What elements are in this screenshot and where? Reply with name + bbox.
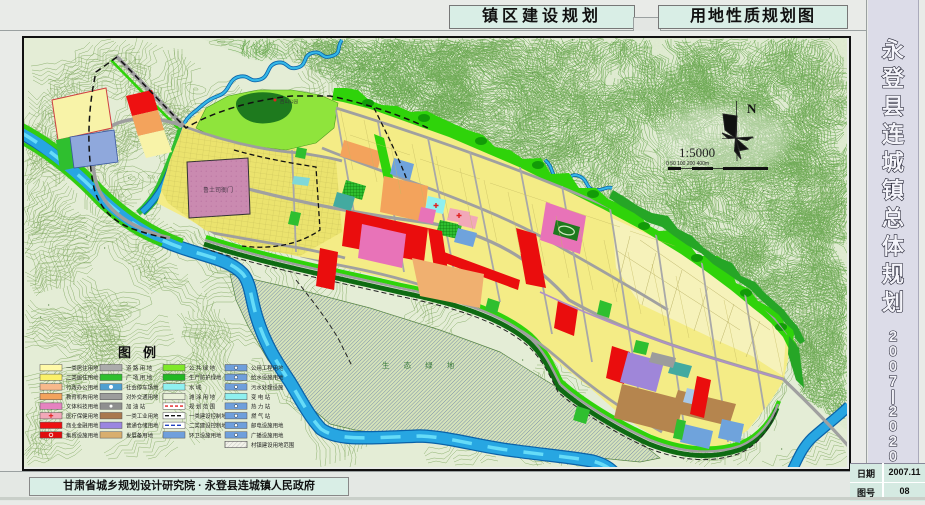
svg-text:县: 县 xyxy=(882,94,904,119)
svg-text:体: 体 xyxy=(882,234,905,259)
svg-text:永: 永 xyxy=(882,38,904,63)
svg-text:登: 登 xyxy=(881,66,905,91)
svg-text:规: 规 xyxy=(882,262,904,287)
svg-text:划: 划 xyxy=(882,290,904,315)
svg-text:城: 城 xyxy=(882,150,904,175)
svg-text:0: 0 xyxy=(889,448,897,463)
svg-text:连: 连 xyxy=(882,122,905,147)
svg-text:镇: 镇 xyxy=(882,178,904,203)
svg-text:总: 总 xyxy=(882,206,904,231)
